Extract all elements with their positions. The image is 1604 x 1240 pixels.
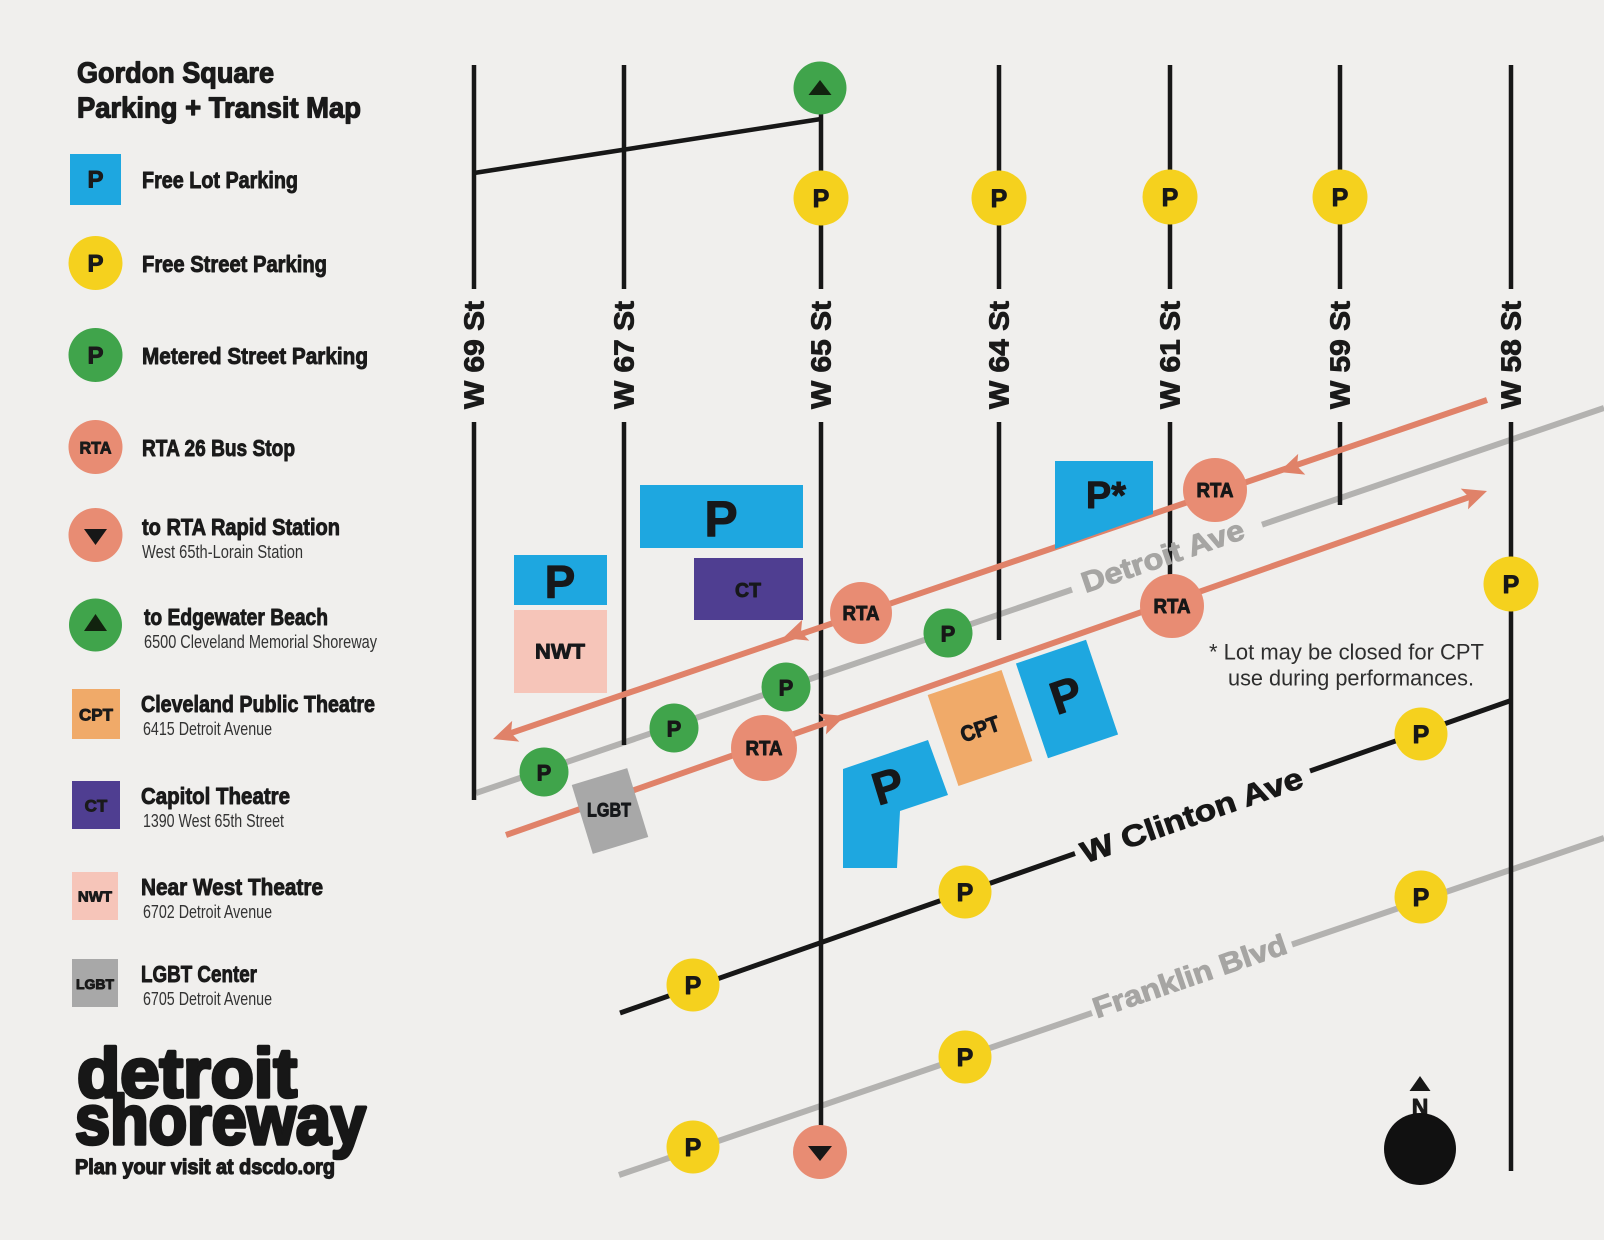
- svg-text:Franklin Blvd: Franklin Blvd: [1089, 929, 1291, 1025]
- svg-text:W 69 St: W 69 St: [459, 301, 490, 409]
- svg-text:P: P: [1332, 184, 1349, 212]
- svg-text:1390 West 65th Street: 1390 West 65th Street: [143, 811, 284, 831]
- svg-text:P: P: [1503, 571, 1520, 599]
- svg-text:W 58 St: W 58 St: [1496, 301, 1527, 409]
- svg-text:CT: CT: [85, 797, 108, 816]
- svg-text:NWT: NWT: [78, 889, 112, 906]
- svg-text:Capitol Theatre: Capitol Theatre: [141, 783, 290, 809]
- svg-text:6500 Cleveland Memorial Shorew: 6500 Cleveland Memorial Shoreway: [144, 632, 377, 652]
- svg-text:CPT: CPT: [79, 706, 114, 725]
- svg-text:West 65th-Lorain Station: West 65th-Lorain Station: [142, 542, 303, 562]
- svg-text:W 61 St: W 61 St: [1155, 301, 1186, 409]
- svg-text:W 67 St: W 67 St: [609, 301, 640, 409]
- svg-text:Cleveland Public Theatre: Cleveland Public Theatre: [141, 691, 375, 717]
- svg-text:RTA: RTA: [843, 603, 880, 625]
- svg-text:use during performances.: use during performances.: [1228, 666, 1474, 691]
- svg-text:RTA: RTA: [746, 738, 783, 760]
- svg-text:P: P: [685, 1134, 702, 1162]
- svg-text:RTA: RTA: [1197, 480, 1234, 502]
- svg-text:P: P: [87, 343, 103, 370]
- svg-text:RTA 26 Bus Stop: RTA 26 Bus Stop: [142, 435, 295, 461]
- svg-text:Plan your visit at dscdo.org: Plan your visit at dscdo.org: [75, 1156, 335, 1179]
- svg-text:Free Street Parking: Free Street Parking: [142, 251, 327, 277]
- svg-text:shoreway: shoreway: [75, 1081, 366, 1159]
- svg-text:LGBT: LGBT: [76, 976, 115, 992]
- svg-text:P: P: [1162, 184, 1179, 212]
- svg-text:P: P: [545, 556, 576, 608]
- svg-text:6415 Detroit Avenue: 6415 Detroit Avenue: [143, 719, 272, 739]
- svg-text:P: P: [1413, 884, 1430, 912]
- svg-text:6702 Detroit Avenue: 6702 Detroit Avenue: [143, 902, 272, 922]
- svg-text:W 59 St: W 59 St: [1325, 301, 1356, 409]
- svg-text:Metered Street Parking: Metered Street Parking: [142, 343, 368, 369]
- svg-text:P: P: [957, 879, 974, 907]
- svg-text:P: P: [941, 622, 956, 647]
- svg-text:* Lot may be closed for CPT: * Lot may be closed for CPT: [1209, 640, 1484, 665]
- svg-text:CT: CT: [735, 580, 761, 602]
- svg-text:to Edgewater Beach: to Edgewater Beach: [144, 604, 328, 630]
- svg-text:Parking + Transit Map: Parking + Transit Map: [77, 93, 361, 125]
- svg-text:to RTA Rapid Station: to RTA Rapid Station: [142, 514, 340, 540]
- svg-text:P: P: [704, 491, 737, 547]
- svg-text:W Clinton Ave: W Clinton Ave: [1077, 762, 1308, 870]
- svg-text:Near West Theatre: Near West Theatre: [141, 874, 323, 900]
- svg-text:Gordon Square: Gordon Square: [77, 58, 274, 90]
- svg-text:Free Lot Parking: Free Lot Parking: [142, 167, 298, 193]
- svg-text:P: P: [685, 972, 702, 1000]
- svg-text:P: P: [87, 167, 103, 194]
- svg-text:RTA: RTA: [1154, 596, 1191, 618]
- svg-text:P: P: [667, 717, 682, 742]
- svg-text:6705 Detroit Avenue: 6705 Detroit Avenue: [143, 989, 272, 1009]
- svg-text:P*: P*: [1086, 475, 1126, 517]
- svg-text:P: P: [779, 676, 794, 701]
- svg-text:LGBT Center: LGBT Center: [141, 961, 257, 987]
- svg-text:W 65 St: W 65 St: [806, 301, 837, 409]
- svg-text:P: P: [537, 761, 552, 786]
- svg-text:P: P: [813, 185, 830, 213]
- svg-text:P: P: [957, 1044, 974, 1072]
- svg-text:NWT: NWT: [535, 641, 585, 664]
- svg-text:W 64 St: W 64 St: [984, 301, 1015, 409]
- svg-text:RTA: RTA: [80, 439, 112, 458]
- svg-text:LGBT: LGBT: [587, 801, 631, 822]
- svg-text:P: P: [1413, 721, 1430, 749]
- svg-text:P: P: [991, 185, 1008, 213]
- svg-text:P: P: [87, 251, 103, 278]
